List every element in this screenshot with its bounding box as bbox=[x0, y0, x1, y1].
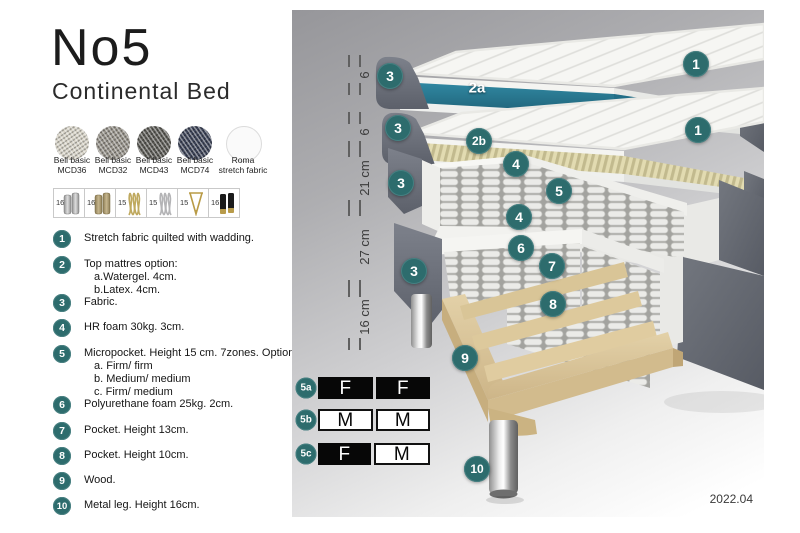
firmness-cell: M bbox=[376, 409, 431, 431]
cylinder-silver-leg-icon bbox=[63, 192, 81, 216]
leg-option: 15 bbox=[147, 189, 178, 217]
legend-text: Metal leg. Height 16cm. bbox=[84, 499, 314, 512]
firmness-cell: F bbox=[376, 377, 431, 399]
ruler-label: 6 bbox=[357, 110, 373, 154]
firmness-row-badge: 5a bbox=[296, 378, 317, 399]
ruler-tick bbox=[348, 145, 350, 157]
diagram-panel: 6 6 21 cm 27 cm 16 cm 3 2a 1 3 2b 1 4 5 … bbox=[292, 10, 764, 517]
firmness-row: F F bbox=[318, 377, 430, 399]
firmness-cell: F bbox=[318, 377, 373, 399]
legend-subitem: a. Firm/ firm bbox=[94, 360, 314, 373]
leg-option: 16 bbox=[54, 189, 85, 217]
box-base bbox=[394, 223, 764, 504]
leg-option: 15 bbox=[178, 189, 209, 217]
diagram-badge: 4 bbox=[503, 151, 529, 177]
ruler-tick bbox=[348, 285, 350, 297]
diagram-badge: 3 bbox=[385, 115, 411, 141]
ruler-tick bbox=[348, 112, 350, 124]
diagram-badge: 3 bbox=[377, 63, 403, 89]
leg-option: 15 bbox=[116, 189, 147, 217]
legend-text: Pocket. Height 10cm. bbox=[84, 449, 314, 462]
diagram-badge: 3 bbox=[401, 258, 427, 284]
ruler-tick bbox=[348, 338, 350, 350]
ruler-label: 27 cm bbox=[357, 225, 373, 269]
ruler-tick bbox=[348, 83, 350, 95]
leg-options-row: 16 16 15 15 bbox=[53, 188, 240, 218]
legend-text: Wood. bbox=[84, 474, 314, 487]
bed-shadow bbox=[664, 391, 764, 413]
ruler-label: 16 cm bbox=[357, 295, 373, 339]
legend-number-badge: 5 bbox=[53, 345, 71, 363]
ruler-label: 6 bbox=[357, 53, 373, 97]
ruler-tick bbox=[348, 55, 350, 67]
leg-option: 16 bbox=[85, 189, 116, 217]
hairpin-gold-leg-icon bbox=[187, 192, 205, 216]
ruler-label: 21 cm bbox=[357, 156, 373, 200]
diagram-badge: 8 bbox=[540, 291, 566, 317]
diagram-badge: 7 bbox=[539, 253, 565, 279]
product-title: No5 bbox=[51, 18, 152, 78]
metal-leg-front bbox=[489, 420, 518, 499]
legend-text: Pocket. Height 13cm. bbox=[84, 424, 314, 437]
diagram-badge: 3 bbox=[388, 170, 414, 196]
legend-text: Fabric. bbox=[84, 296, 314, 309]
diagram-badge: 10 bbox=[464, 456, 490, 482]
diagram-badge: 2b bbox=[466, 128, 492, 154]
twisted-gold-leg-icon bbox=[125, 192, 143, 216]
firmness-row-badge: 5c bbox=[296, 444, 317, 465]
ruler-tick bbox=[348, 204, 350, 216]
legend-number-badge: 1 bbox=[53, 230, 71, 248]
legend-text: Micropocket. Height 15 cm. 7zones. Optio… bbox=[84, 347, 314, 360]
firmness-row: M M bbox=[318, 409, 430, 431]
firmness-cell: F bbox=[318, 443, 371, 465]
diagram-badge: 6 bbox=[508, 235, 534, 261]
legend-text: Stretch fabric quilted with wadding. bbox=[84, 232, 314, 245]
diagram-badge: 9 bbox=[452, 345, 478, 371]
cylinder-black-gold-leg-icon bbox=[218, 192, 236, 216]
firmness-row-badge: 5b bbox=[296, 410, 317, 431]
leg-shadow bbox=[486, 496, 524, 504]
legend-text: Top mattres option: bbox=[84, 258, 314, 271]
cylinder-bronze-leg-icon bbox=[94, 192, 112, 216]
diagram-badge: 1 bbox=[685, 117, 711, 143]
leg-option: 16 bbox=[209, 189, 239, 217]
legend-number-badge: 6 bbox=[53, 396, 71, 414]
legend-number-badge: 9 bbox=[53, 472, 71, 490]
legend-text: HR foam 30kg. 3cm. bbox=[84, 321, 314, 334]
diagram-badge: 1 bbox=[683, 51, 709, 77]
infographic-page: No5 Continental Bed Bell basicMCD36 Bell… bbox=[0, 0, 800, 533]
legend-text: Polyurethane foam 25kg. 2cm. bbox=[84, 398, 314, 411]
legend-number-badge: 7 bbox=[53, 422, 71, 440]
firmness-row: F M bbox=[318, 443, 430, 465]
fabric-swatch-label: Romastretch fabric bbox=[214, 155, 272, 175]
version-stamp: 2022.04 bbox=[710, 492, 753, 506]
legend-number-badge: 8 bbox=[53, 447, 71, 465]
legend-number-badge: 3 bbox=[53, 294, 71, 312]
metal-leg-left bbox=[411, 294, 432, 348]
twisted-silver-leg-icon bbox=[156, 192, 174, 216]
legend-number-badge: 10 bbox=[53, 497, 71, 515]
product-subtitle: Continental Bed bbox=[52, 78, 231, 105]
legend-subitem: b. Medium/ medium bbox=[94, 373, 314, 386]
diagram-badge: 4 bbox=[506, 204, 532, 230]
legend-number-badge: 2 bbox=[53, 256, 71, 274]
legend-number-badge: 4 bbox=[53, 319, 71, 337]
diagram-badge: 5 bbox=[546, 178, 572, 204]
diagram-badge: 2a bbox=[469, 80, 486, 97]
legend-subitem: a.Watergel. 4cm. bbox=[94, 271, 314, 284]
firmness-cell: M bbox=[318, 409, 373, 431]
firmness-cell: M bbox=[374, 443, 431, 465]
